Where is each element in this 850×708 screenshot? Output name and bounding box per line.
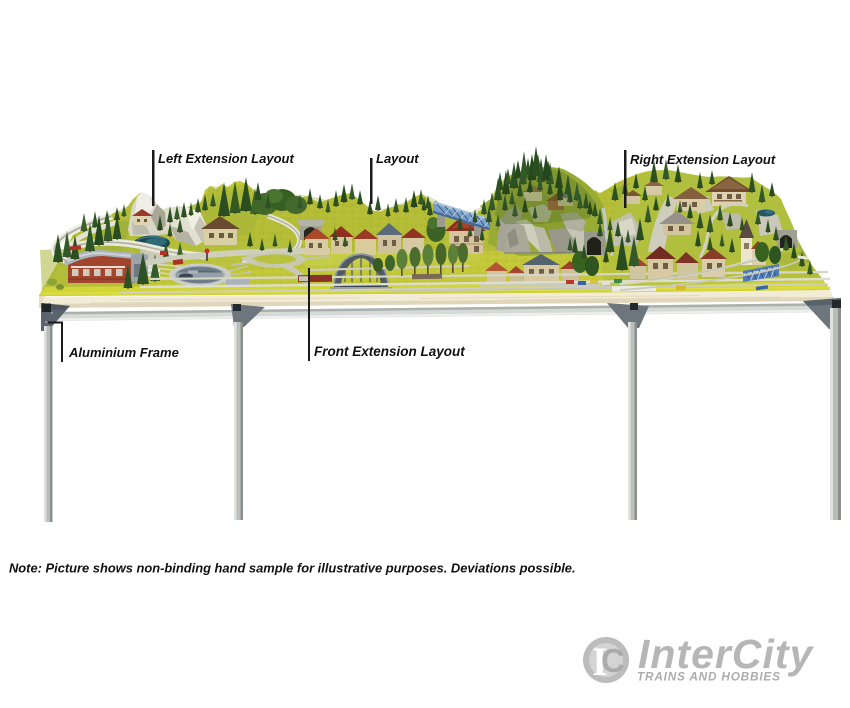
- svg-text:Aluminium Frame: Aluminium Frame: [68, 345, 179, 360]
- svg-text:C: C: [601, 642, 625, 679]
- svg-text:Front Extension Layout: Front Extension Layout: [314, 344, 465, 359]
- svg-text:Left Extension Layout: Left Extension Layout: [158, 151, 294, 166]
- svg-text:TRAINS AND HOBBIES: TRAINS AND HOBBIES: [637, 670, 781, 684]
- svg-text:Right Extension Layout: Right Extension Layout: [630, 152, 776, 167]
- svg-text:Layout: Layout: [376, 151, 419, 166]
- svg-text:Note: Picture shows non-bindin: Note: Picture shows non-binding hand sam…: [9, 561, 576, 576]
